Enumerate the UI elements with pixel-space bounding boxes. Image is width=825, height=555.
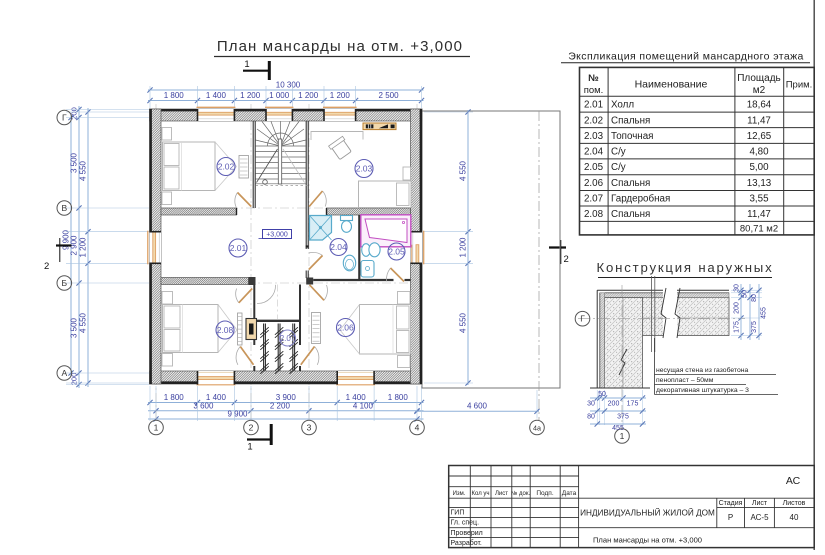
svg-text:200: 200 [70, 373, 79, 386]
svg-text:А: А [61, 368, 67, 378]
svg-text:4: 4 [415, 422, 420, 432]
svg-text:2: 2 [44, 261, 49, 272]
svg-text:375: 375 [751, 321, 758, 333]
svg-text:2.03: 2.03 [584, 131, 604, 142]
svg-text:Гл. спец.: Гл. спец. [451, 520, 480, 527]
svg-text:12,65: 12,65 [747, 131, 772, 142]
svg-text:Г: Г [580, 314, 585, 324]
svg-text:455: 455 [761, 307, 768, 319]
svg-text:Подп.: Подп. [536, 490, 553, 497]
svg-text:1 200: 1 200 [330, 91, 351, 100]
svg-text:Топочная: Топочная [611, 131, 653, 142]
svg-text:455: 455 [612, 425, 624, 432]
svg-text:9 900: 9 900 [227, 410, 248, 419]
svg-text:2.01: 2.01 [230, 243, 247, 253]
svg-text:2.06: 2.06 [584, 178, 604, 189]
svg-text:1 800: 1 800 [164, 91, 185, 100]
svg-text:3 500: 3 500 [70, 317, 79, 338]
svg-text:2.02: 2.02 [584, 115, 603, 126]
svg-text:Прим.: Прим. [786, 80, 813, 91]
svg-text:4 550: 4 550 [79, 312, 88, 333]
svg-text:13,13: 13,13 [747, 178, 772, 189]
svg-text:План мансарды на отм. +3,000: План мансарды на отм. +3,000 [593, 536, 702, 545]
svg-text:4,80: 4,80 [749, 147, 769, 158]
svg-text:1: 1 [244, 59, 249, 70]
svg-text:3 600: 3 600 [193, 401, 214, 410]
svg-text:Листов: Листов [783, 500, 806, 507]
svg-text:Наименование: Наименование [635, 79, 708, 91]
svg-text:50: 50 [598, 391, 606, 398]
svg-text:3 500: 3 500 [70, 152, 79, 173]
svg-text:80,71 м2: 80,71 м2 [740, 223, 778, 234]
svg-text:2.04: 2.04 [584, 147, 604, 158]
svg-text:Спальня: Спальня [611, 178, 650, 189]
svg-text:3: 3 [307, 422, 312, 432]
svg-text:Стадия: Стадия [719, 500, 743, 507]
svg-text:1: 1 [154, 422, 159, 432]
svg-text:Экспликация помещений мансардн: Экспликация помещений мансардного этажа [568, 51, 804, 63]
svg-text:2.08: 2.08 [217, 325, 234, 335]
svg-text:4 550: 4 550 [459, 312, 468, 333]
svg-text:2.08: 2.08 [584, 209, 604, 220]
svg-text:Холл: Холл [611, 100, 634, 111]
svg-text:175: 175 [734, 321, 741, 333]
svg-text:4 550: 4 550 [79, 160, 88, 181]
svg-text:несущая стена из газобетона: несущая стена из газобетона [656, 366, 749, 374]
svg-text:1: 1 [620, 431, 625, 441]
svg-text:декоративная штукатурка – 3: декоративная штукатурка – 3 [656, 387, 749, 394]
svg-text:1 400: 1 400 [206, 91, 227, 100]
svg-text:В: В [61, 203, 67, 213]
svg-text:2.07: 2.07 [280, 334, 296, 343]
svg-text:2.05: 2.05 [584, 162, 604, 173]
svg-text:2 200: 2 200 [270, 401, 291, 410]
svg-text:30: 30 [587, 401, 595, 408]
svg-text:Кол уч: Кол уч [472, 491, 490, 497]
svg-text:4 550: 4 550 [459, 160, 468, 181]
svg-text:1 200: 1 200 [79, 237, 88, 258]
svg-text:2.04: 2.04 [330, 242, 347, 252]
svg-text:2.02: 2.02 [218, 162, 235, 172]
svg-text:Спальня: Спальня [611, 115, 650, 126]
svg-text:1 200: 1 200 [459, 237, 468, 258]
svg-text:АС: АС [786, 475, 801, 487]
svg-text:10 300: 10 300 [276, 81, 301, 90]
svg-text:2.01: 2.01 [584, 100, 603, 111]
svg-text:пенопласт – 50мм: пенопласт – 50мм [656, 377, 714, 384]
svg-text:Лист: Лист [752, 500, 768, 507]
svg-text:2: 2 [564, 254, 569, 265]
svg-text:АС-5: АС-5 [750, 513, 769, 522]
svg-text:Площадь: Площадь [737, 73, 781, 84]
svg-text:С/у: С/у [611, 147, 626, 158]
svg-text:175: 175 [627, 401, 639, 408]
svg-text:375: 375 [617, 414, 629, 421]
svg-text:4 600: 4 600 [467, 402, 488, 411]
svg-text:1 000: 1 000 [269, 91, 290, 100]
svg-text:4 100: 4 100 [353, 401, 374, 410]
svg-text:1: 1 [247, 442, 252, 453]
svg-text:Лист: Лист [495, 491, 508, 497]
svg-text:1 800: 1 800 [164, 393, 185, 402]
svg-text:5,00: 5,00 [749, 162, 769, 173]
svg-text:План мансарды на отм. +3,000: План мансарды на отм. +3,000 [217, 38, 463, 55]
svg-text:80: 80 [587, 414, 595, 421]
svg-text:№: № [588, 73, 599, 84]
svg-text:Р: Р [728, 513, 733, 522]
svg-text:2 500: 2 500 [379, 91, 400, 100]
svg-text:№ док.: № док. [511, 490, 531, 497]
svg-text:Изм.: Изм. [453, 491, 466, 497]
svg-text:2.07: 2.07 [584, 194, 603, 205]
svg-text:Гардеробная: Гардеробная [611, 194, 670, 205]
svg-text:Разработ.: Разработ. [451, 539, 482, 547]
svg-text:80: 80 [751, 294, 758, 302]
svg-text:4а: 4а [533, 423, 541, 432]
svg-text:30: 30 [734, 284, 741, 292]
svg-text:С/у: С/у [611, 162, 626, 173]
svg-text:50: 50 [742, 290, 749, 298]
svg-text:11,47: 11,47 [747, 209, 771, 220]
svg-text:200: 200 [734, 302, 741, 314]
svg-text:Конструкция наружных: Конструкция наружных [597, 260, 774, 275]
svg-text:40: 40 [790, 513, 799, 522]
svg-text:18,64: 18,64 [747, 100, 772, 111]
svg-text:11,47: 11,47 [747, 115, 771, 126]
svg-text:3,55: 3,55 [749, 194, 769, 205]
svg-text:+3,000: +3,000 [266, 232, 288, 239]
svg-text:1 200: 1 200 [240, 91, 261, 100]
svg-text:200: 200 [608, 401, 620, 408]
svg-text:ИНДИВИДУАЛЬНЫЙ ЖИЛОЙ ДОМ: ИНДИВИДУАЛЬНЫЙ ЖИЛОЙ ДОМ [580, 507, 715, 518]
svg-text:м2: м2 [753, 85, 766, 96]
svg-text:2: 2 [249, 422, 254, 432]
svg-text:пом.: пом. [584, 85, 604, 96]
svg-text:ГИП: ГИП [451, 510, 465, 517]
svg-text:2.03: 2.03 [356, 164, 373, 174]
svg-text:1 800: 1 800 [388, 393, 409, 402]
svg-text:Проверил: Проверил [451, 530, 483, 537]
svg-text:1 200: 1 200 [298, 91, 319, 100]
svg-text:Г: Г [62, 113, 67, 123]
svg-text:Дата: Дата [562, 490, 577, 497]
svg-text:2.05: 2.05 [388, 247, 405, 257]
svg-text:2.06: 2.06 [337, 323, 354, 333]
svg-text:Спальня: Спальня [611, 209, 650, 220]
svg-text:Б: Б [62, 278, 68, 288]
